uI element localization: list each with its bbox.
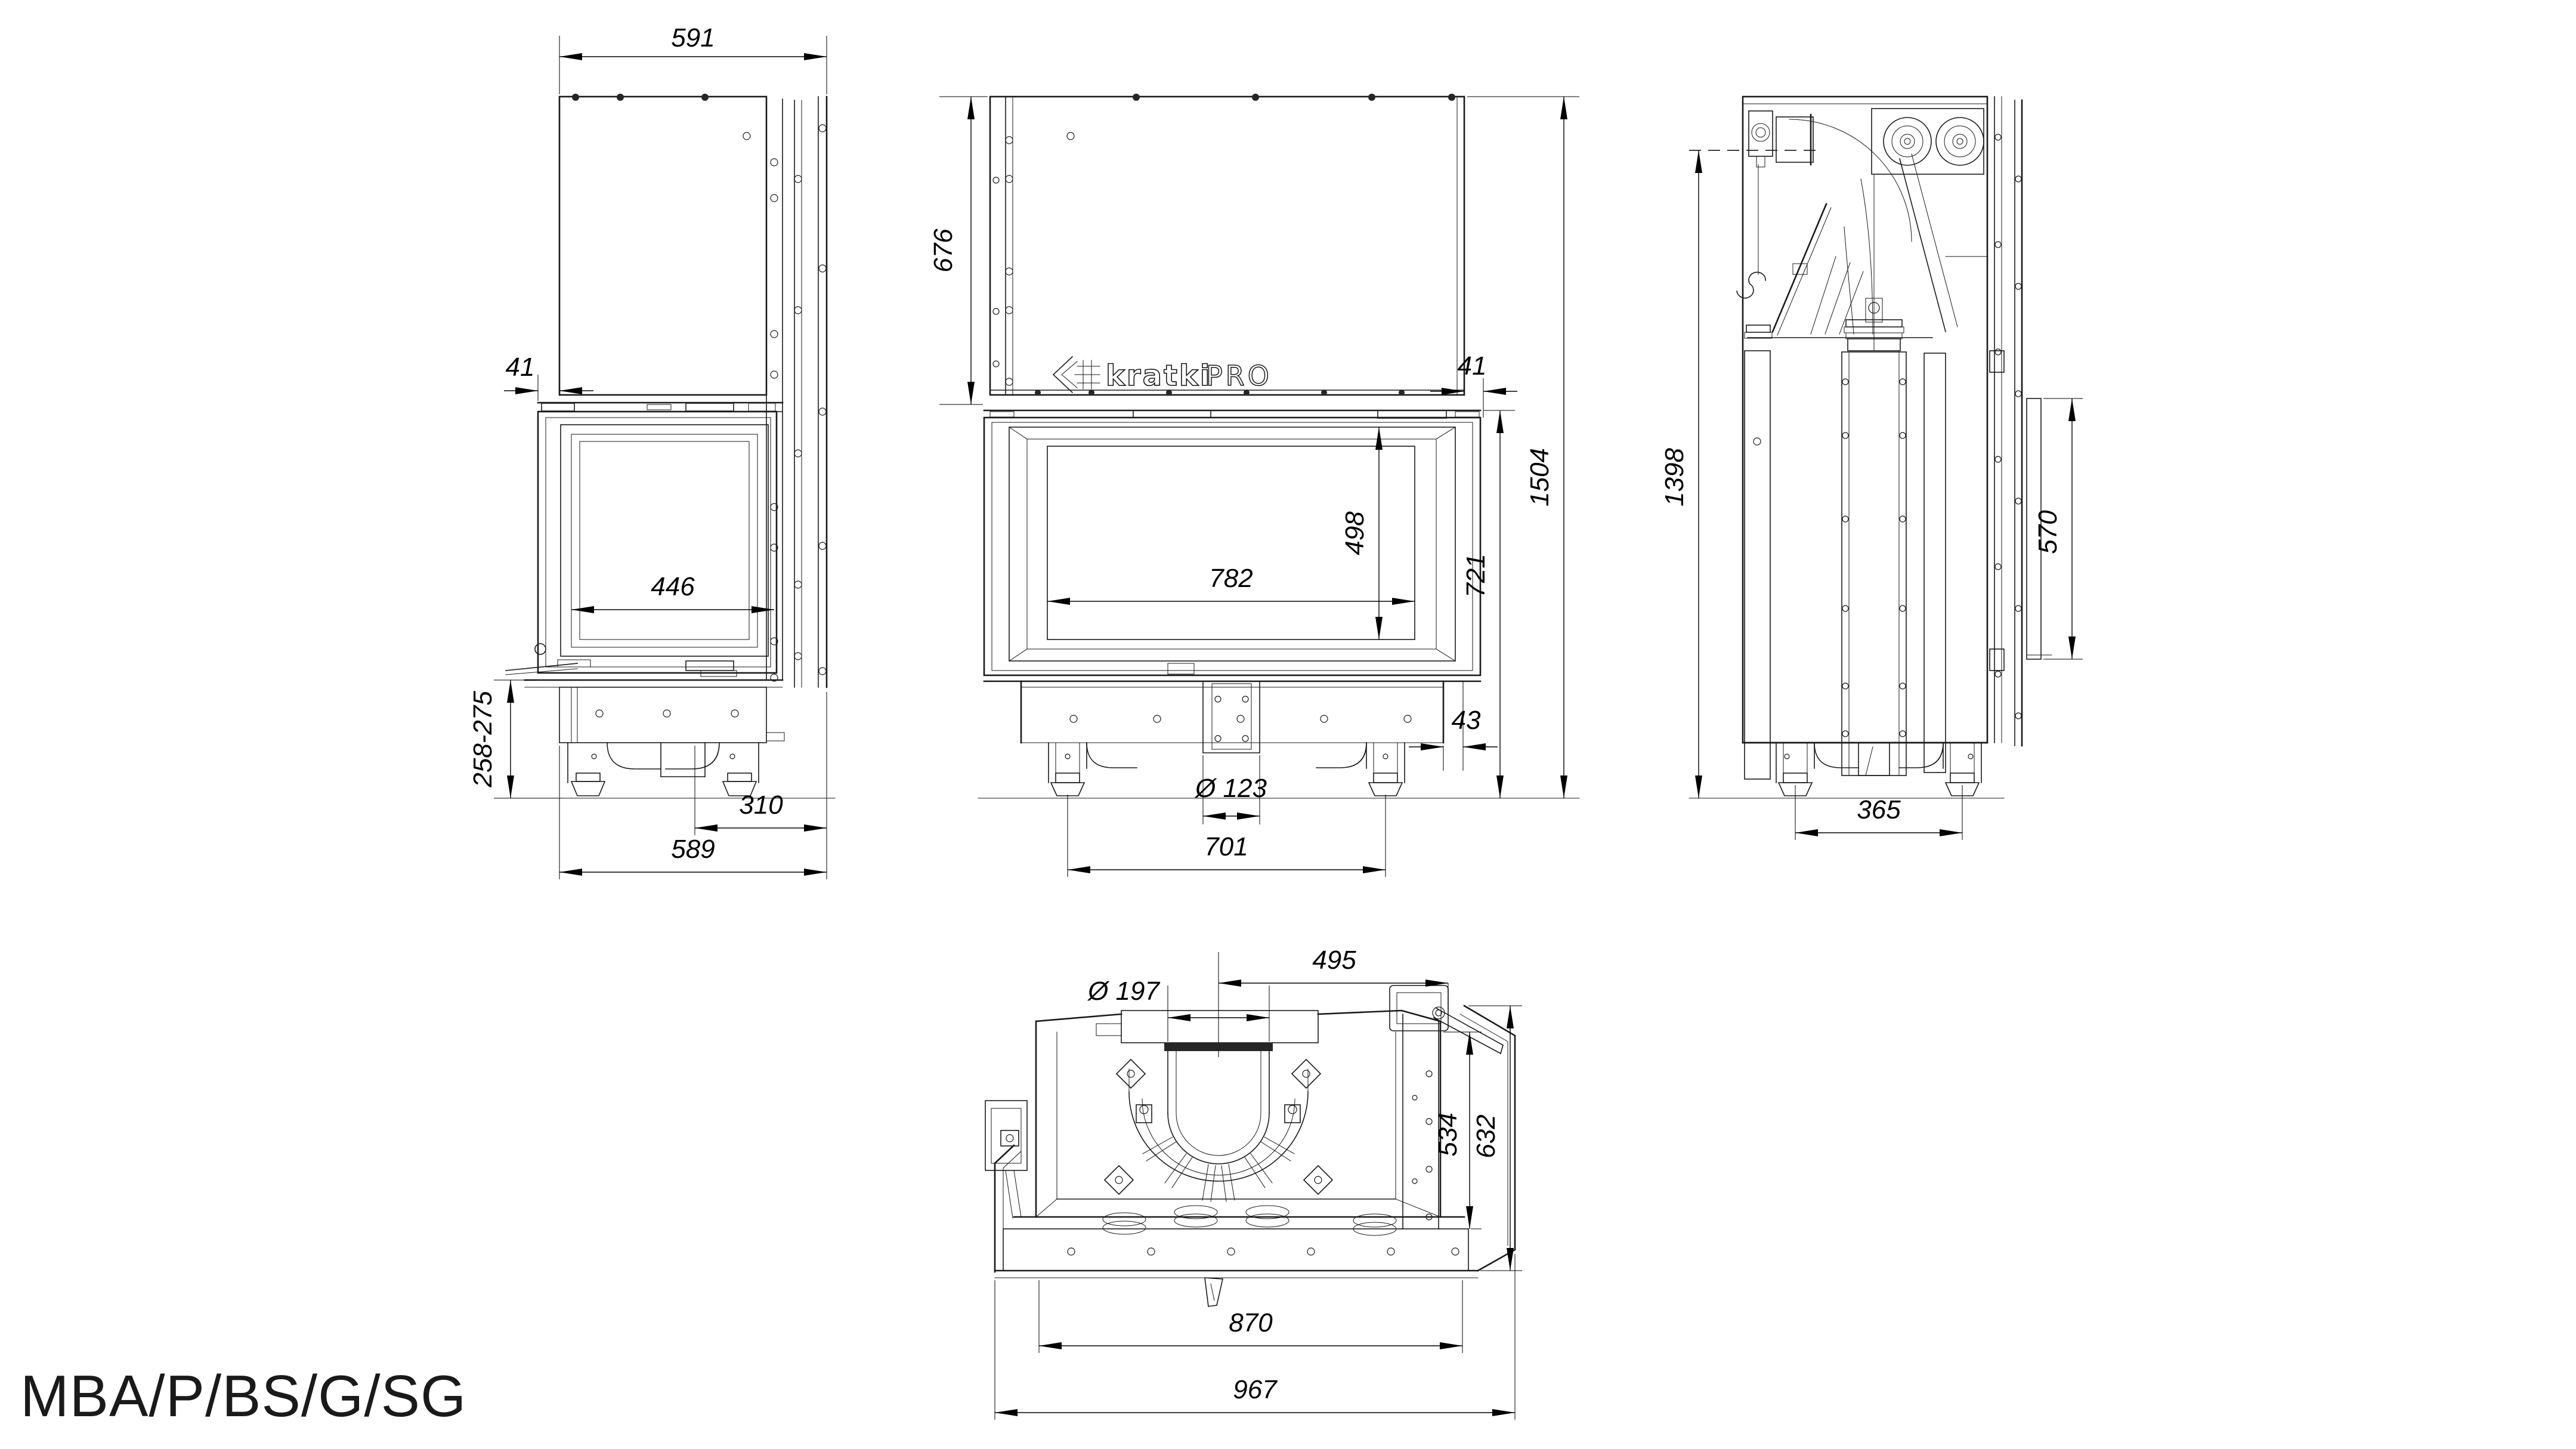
dim-side-glass-width: 446 — [571, 572, 774, 610]
svg-text:41: 41 — [506, 353, 535, 382]
dim-front-hood-height: 676 — [929, 97, 988, 404]
side-view-left: 591 41 446 258-275 310 589 — [468, 23, 835, 879]
handle-bracket — [985, 1101, 1027, 1218]
svg-text:701: 701 — [1204, 832, 1248, 861]
dim-front-outlet-diameter: Ø 123 — [1194, 755, 1267, 824]
svg-text:41: 41 — [1458, 351, 1487, 381]
dim-top-body-width: 870 — [1039, 1280, 1462, 1353]
svg-text:870: 870 — [1229, 1308, 1273, 1337]
svg-text:258-275: 258-275 — [468, 691, 497, 788]
model-caption: MBA/P/BS/G/SG — [20, 1363, 466, 1430]
svg-text:632: 632 — [1471, 1114, 1501, 1158]
svg-text:782: 782 — [1209, 564, 1253, 593]
collar-mount-tabs — [1105, 1059, 1332, 1194]
front-view: kratki PRO — [929, 94, 1579, 877]
dim-side-overall-width: 591 — [559, 23, 827, 94]
kratki-logo-icon — [1053, 357, 1100, 393]
collar-gussets — [1143, 1137, 1294, 1201]
dim-front-glass-height: 498 — [1340, 427, 1379, 639]
logo-series-text: PRO — [1206, 360, 1272, 392]
floor-bosses — [1103, 1206, 1396, 1235]
svg-text:43: 43 — [1452, 706, 1481, 735]
svg-text:495: 495 — [1312, 946, 1356, 975]
technical-drawing: 591 41 446 258-275 310 589 — [0, 0, 2576, 1449]
svg-text:498: 498 — [1340, 511, 1369, 555]
dim-front-glass-width: 782 — [1047, 564, 1415, 601]
drawing-sheet: { "page": { "background": "#ffffff", "ca… — [0, 0, 2576, 1449]
side-view-right: 1398 570 365 — [1660, 97, 2083, 840]
dim-front-frame-gap: 43 — [1409, 681, 1498, 771]
svg-text:676: 676 — [929, 228, 958, 273]
svg-text:967: 967 — [1233, 1375, 1278, 1404]
dim-side-plinth-height: 258-275 — [468, 680, 564, 798]
dim-top-flue-center-to-edge: 495 — [1219, 946, 1448, 1009]
svg-text:1398: 1398 — [1660, 448, 1689, 506]
dim-top-flue-diameter: Ø 197 — [1087, 977, 1269, 1042]
dim-top-overall-depth: 632 — [1468, 1006, 1522, 1271]
top-view: 495 Ø 197 534 632 870 — [985, 946, 1522, 1420]
svg-text:534: 534 — [1433, 1113, 1462, 1156]
dim-side-frame-offset: 41 — [504, 353, 593, 401]
dim-side-foot-to-frame: 310 — [695, 692, 827, 835]
kratki-logo: kratki PRO — [1053, 357, 1272, 393]
svg-text:589: 589 — [671, 835, 715, 864]
dim-front-overall-height: 1504 — [1467, 97, 1579, 798]
svg-text:310: 310 — [739, 790, 783, 820]
dim-side-base-width: 589 — [559, 746, 827, 879]
dim-front-frame-offset: 41 — [1430, 351, 1517, 418]
svg-text:591: 591 — [671, 23, 715, 52]
svg-text:446: 446 — [651, 572, 695, 601]
svg-text:365: 365 — [1857, 795, 1901, 824]
svg-text:721: 721 — [1461, 554, 1490, 597]
dim-front-feet-spacing: 701 — [1068, 795, 1386, 877]
dim-right-flue-axis-height: 1398 — [1660, 150, 1699, 798]
dim-right-feet-spacing: 365 — [1795, 785, 1962, 840]
svg-text:1504: 1504 — [1525, 448, 1554, 506]
damper-bracket — [1390, 985, 1503, 1053]
dim-front-firebox-height: 721 — [1461, 410, 1515, 798]
svg-text:570: 570 — [2033, 510, 2062, 554]
svg-text:Ø 197: Ø 197 — [1087, 977, 1160, 1006]
logo-brand-text: kratki — [1106, 359, 1211, 393]
svg-text:Ø 123: Ø 123 — [1194, 774, 1267, 803]
